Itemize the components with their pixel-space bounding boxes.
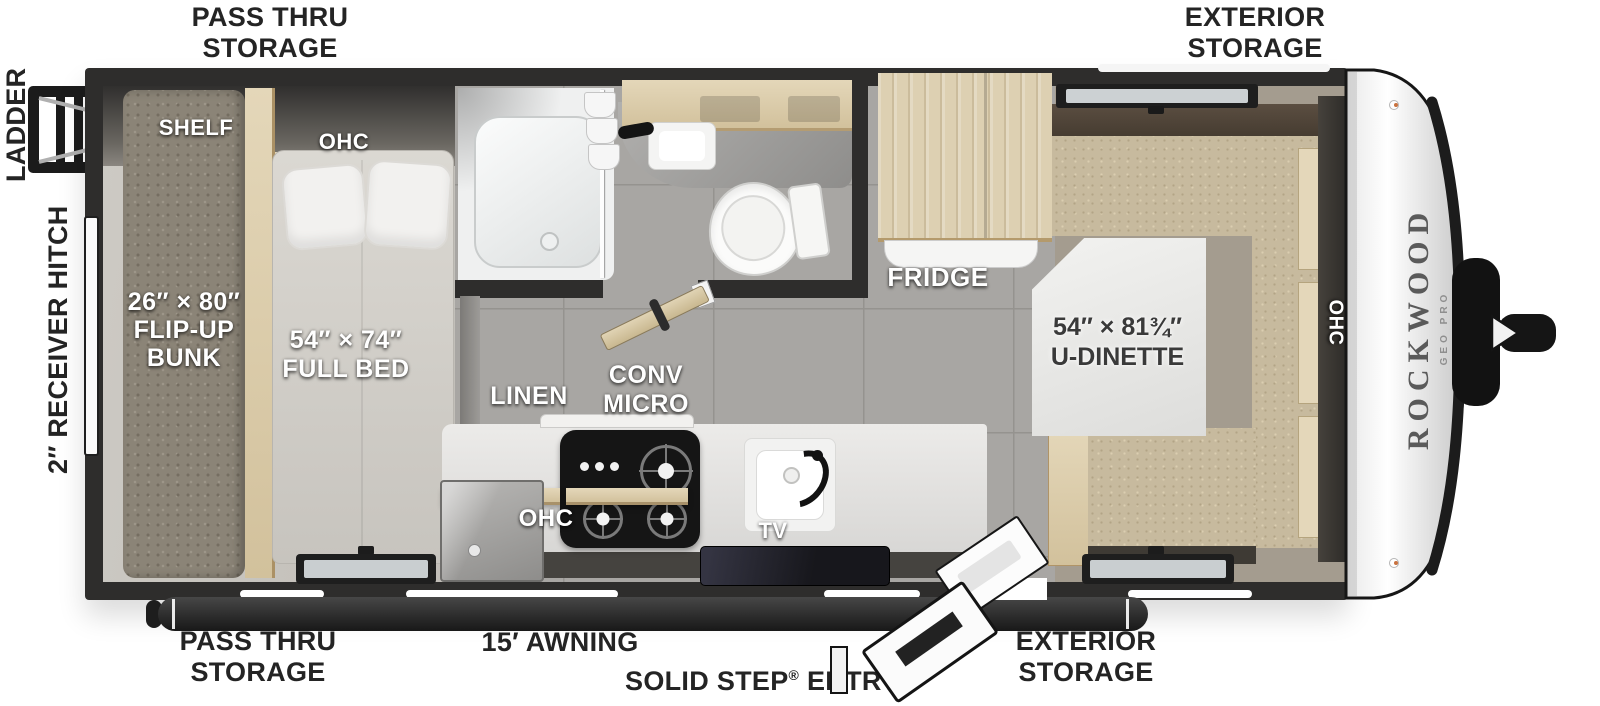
linen-partition	[460, 296, 480, 428]
awning-seam	[1126, 599, 1129, 629]
cooktop-knob	[580, 462, 589, 471]
brand-make: ROCKWOOD	[1404, 178, 1438, 478]
label-bed-ohc: OHC	[304, 129, 384, 155]
shower-caddy	[584, 92, 616, 118]
window	[1082, 554, 1234, 584]
label-conv-micro: CONV MICRO	[576, 361, 716, 419]
cabinet-knob	[468, 544, 481, 557]
label-exterior-storage-top: EXTERIOR STORAGE	[1135, 2, 1375, 64]
bench-back-cushion	[1298, 416, 1320, 538]
cooktop-knob	[595, 462, 604, 471]
label-awning: 15′ AWNING	[440, 627, 680, 658]
label-full-bed: 54″ × 74″ FULL BED	[256, 326, 436, 384]
window	[1056, 84, 1258, 108]
label-u-dinette: 54″ × 81¾″ U-DINETTE	[1020, 312, 1215, 372]
burner	[647, 499, 687, 539]
floorplan-canvas: PASS THRU STORAGE EXTERIOR STORAGE LADDE…	[0, 0, 1600, 706]
dinette-bench-bottom	[1088, 428, 1256, 548]
toilet-icon	[702, 168, 834, 282]
label-tv: TV	[743, 518, 803, 544]
receiver-hitch-tube-icon	[84, 216, 99, 456]
cabinet-panel	[700, 96, 760, 122]
shower-caddy	[586, 118, 618, 144]
solid-step-entry-icon	[830, 608, 1015, 706]
bathroom-wall-bottom-right	[698, 280, 868, 298]
kitchen-ohc-shelf	[566, 488, 688, 505]
wall-trim	[1098, 64, 1330, 72]
faucet-base	[812, 450, 823, 461]
label-kitchen-ohc: OHC	[506, 505, 586, 533]
label-fridge: FRIDGE	[868, 262, 1008, 293]
shower-tray	[474, 116, 602, 268]
dinette-bench-wood-cap	[1048, 428, 1090, 566]
label-receiver-hitch: 2″ RECEIVER HITCH	[43, 208, 71, 474]
brand-model: GEO PRO	[1440, 263, 1454, 393]
bench-back-cushion	[1298, 148, 1320, 270]
wall-trim	[1128, 590, 1252, 598]
label-linen: LINEN	[479, 382, 579, 411]
tv-icon	[700, 546, 890, 586]
label-pass-thru-storage-top: PASS THRU STORAGE	[150, 2, 390, 64]
bathroom-wall-right	[852, 86, 868, 298]
bathroom-sink	[648, 122, 716, 170]
burner	[583, 499, 623, 539]
window-latch	[1148, 106, 1164, 114]
shower-caddy	[588, 144, 620, 170]
cooktop-knob	[610, 462, 619, 471]
awning-seam	[172, 599, 175, 629]
shower-drain	[540, 232, 559, 251]
label-flip-up-bunk: 26″ × 80″ FLIP-UP BUNK	[104, 288, 264, 372]
pillow	[363, 159, 453, 251]
fridge-cabinet	[878, 73, 1052, 242]
window	[296, 554, 436, 584]
pillow	[281, 163, 370, 252]
label-pass-thru-storage-bottom: PASS THRU STORAGE	[138, 626, 378, 688]
cabinet-panel	[788, 96, 840, 122]
label-shelf: SHELF	[146, 115, 246, 141]
dinette-bench-back-top	[1052, 104, 1348, 136]
bench-back-cushion	[1298, 282, 1320, 404]
fridge-divider	[984, 73, 987, 238]
label-ladder: LADDER	[1, 72, 29, 182]
